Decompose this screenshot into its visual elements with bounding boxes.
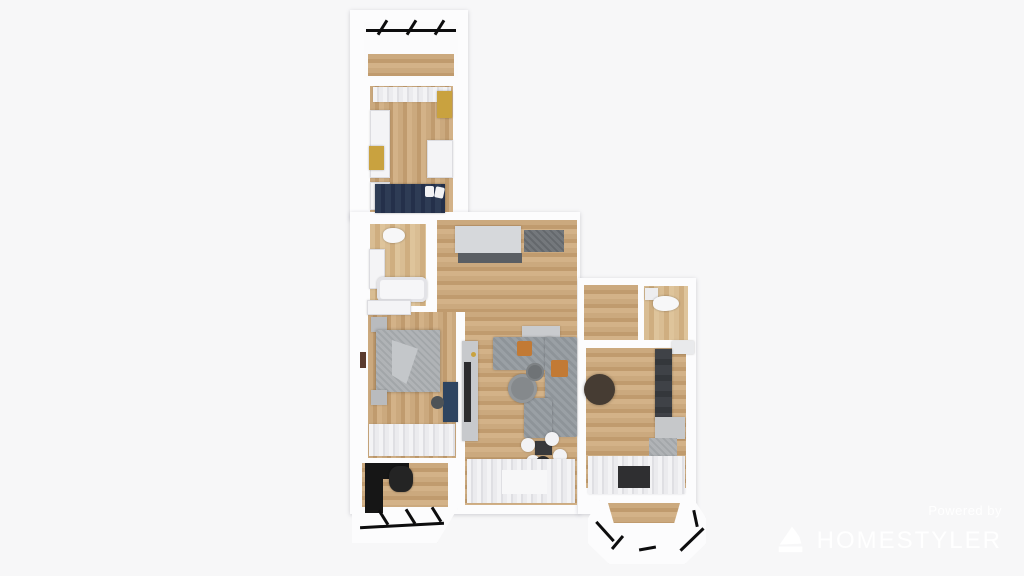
hallway-wardrobe — [455, 226, 521, 253]
bedroom-top-gold-cabinet — [437, 91, 452, 118]
living-cushion-orange — [551, 360, 568, 377]
bathroom-toilet-icon — [383, 228, 405, 243]
bedroom-left-nightstand — [371, 390, 387, 405]
bedroom-left-wardrobe — [367, 300, 411, 315]
living-tv — [464, 362, 471, 422]
bedroom-top-pillow — [425, 186, 434, 197]
room-bay-balcony-floor — [608, 503, 680, 523]
living-cushion-orange — [517, 341, 532, 356]
kitchen-round-table — [584, 374, 615, 405]
bedroom-left-desk-chair — [431, 396, 444, 409]
room-balcony-top — [364, 22, 458, 78]
bedroom-left-window-rug — [369, 424, 455, 456]
living-dining-chair — [545, 432, 559, 446]
kitchen-floor-mat — [618, 466, 650, 488]
bedroom-top-desk — [427, 140, 453, 178]
kitchen-fridge — [672, 341, 694, 354]
bedroom-left-navy-desk — [443, 382, 458, 422]
kitchen-counter-mid — [655, 417, 685, 439]
bathroom-bathtub — [377, 277, 427, 302]
bedroom-top-bed — [375, 184, 445, 213]
floorplan-render-page: { "watermark": { "powered_by_label": "Po… — [0, 0, 1024, 576]
wc-corridor-floor — [584, 285, 638, 340]
bedroom-left-wall-art — [360, 352, 366, 368]
balcony-top-floor — [368, 54, 454, 76]
hallway-doormat — [524, 230, 564, 252]
loggia-office-chair — [389, 466, 413, 492]
living-gold-accent — [471, 352, 476, 357]
homestyler-brand-label: HOMESTYLER — [817, 527, 1002, 555]
living-window-rug-white — [502, 470, 547, 494]
kitchen-counter-dark — [655, 349, 672, 421]
homestyler-logo-icon — [774, 521, 808, 560]
homestyler-watermark: Powered by HOMESTYLER — [774, 503, 1002, 560]
balcony-top-window-mullion-icon — [434, 19, 446, 35]
living-coffee-table-small — [526, 363, 544, 381]
loggia-black-desk — [365, 463, 383, 513]
living-dining-chair — [521, 438, 535, 452]
balcony-top-window-mullion-icon — [406, 19, 418, 35]
hallway-counter — [458, 253, 522, 263]
bedroom-top-gold-cabinet — [369, 146, 384, 170]
wc-toilet-icon — [653, 296, 679, 311]
powered-by-label: Powered by — [774, 503, 1002, 518]
balcony-top-window-mullion-icon — [377, 19, 389, 35]
